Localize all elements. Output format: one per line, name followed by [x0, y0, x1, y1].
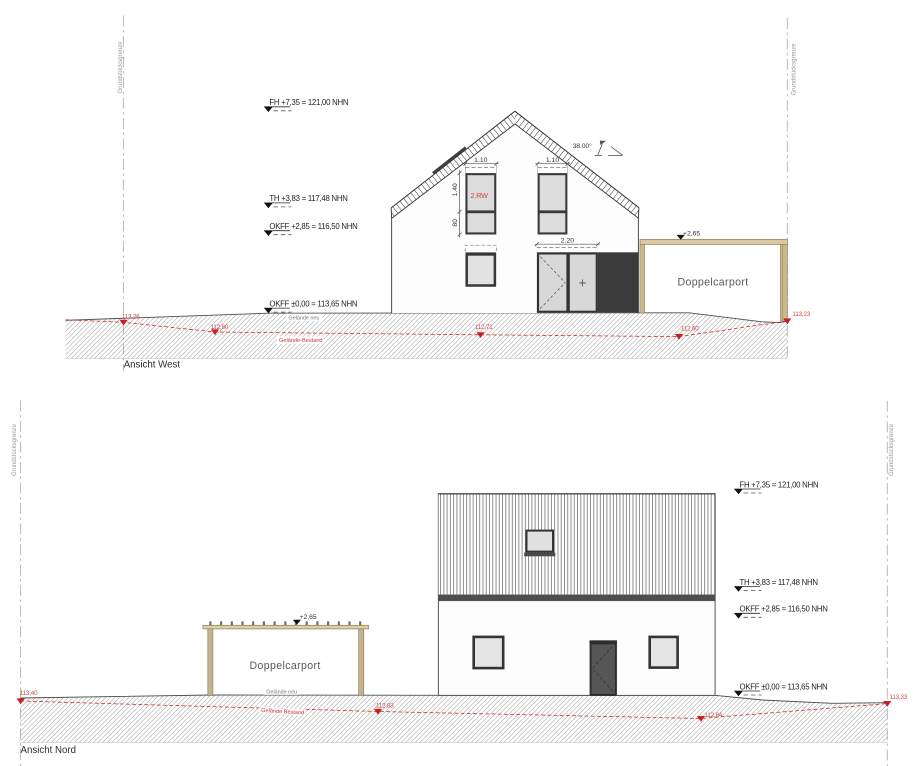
svg-text:113,23: 113,23 [793, 311, 811, 318]
svg-text:113,40: 113,40 [20, 690, 38, 697]
svg-text:113,26: 113,26 [122, 313, 140, 320]
svg-text:1.40: 1.40 [452, 183, 459, 196]
svg-text:FH +7,35 = 121,00 NHN: FH +7,35 = 121,00 NHN [740, 480, 819, 489]
svg-text:Grundstücksgrenze: Grundstücksgrenze [889, 423, 895, 476]
svg-text:112,83: 112,83 [376, 702, 394, 709]
svg-text:Grundstücksgrenze: Grundstücksgrenze [118, 41, 124, 94]
svg-text:OKFF +2,85 = 116,50 NHN: OKFF +2,85 = 116,50 NHN [740, 605, 828, 614]
svg-text:Doppelcarport: Doppelcarport [677, 277, 748, 289]
svg-text:112,71: 112,71 [475, 324, 493, 331]
svg-text:Ansicht West: Ansicht West [124, 360, 181, 371]
svg-text:2.20: 2.20 [561, 237, 574, 244]
svg-text:112,60: 112,60 [681, 326, 699, 333]
svg-text:Doppelcarport: Doppelcarport [250, 660, 321, 672]
svg-text:+2,65: +2,65 [300, 614, 317, 621]
svg-text:1.10: 1.10 [474, 157, 487, 164]
svg-text:113,33: 113,33 [890, 694, 908, 701]
svg-text:Ansicht Nord: Ansicht Nord [21, 745, 76, 756]
svg-text:TH +3,83 = 117,48 NHN: TH +3,83 = 117,48 NHN [740, 578, 818, 587]
svg-text:38.00°: 38.00° [573, 142, 592, 150]
svg-text:112,84: 112,84 [705, 712, 723, 719]
svg-text:Gelände neu: Gelände neu [289, 316, 320, 322]
svg-text:Grundstücksgrenze: Grundstücksgrenze [12, 423, 18, 476]
svg-text:80: 80 [452, 219, 459, 227]
svg-text:1.10: 1.10 [546, 157, 559, 164]
svg-text:Gelände neu: Gelände neu [266, 690, 297, 696]
svg-text:Gelände-Bestand: Gelände-Bestand [279, 338, 323, 344]
svg-text:Grundstücksgrenze: Grundstücksgrenze [792, 43, 798, 96]
svg-text:+2,65: +2,65 [683, 230, 700, 237]
svg-text:OKFF +2,85 = 116,50 NHN: OKFF +2,85 = 116,50 NHN [269, 222, 357, 231]
svg-text:112,80: 112,80 [211, 324, 229, 331]
svg-text:OKFF ±0,00 = 113,65 NHN: OKFF ±0,00 = 113,65 NHN [269, 299, 357, 308]
svg-text:2.RW: 2.RW [471, 191, 489, 200]
svg-text:FH +7,35 = 121,00 NHN: FH +7,35 = 121,00 NHN [269, 98, 348, 107]
svg-text:OKFF ±0,00 = 113,65 NHN: OKFF ±0,00 = 113,65 NHN [740, 682, 828, 691]
svg-text:TH +3,83 = 117,48 NHN: TH +3,83 = 117,48 NHN [269, 194, 347, 203]
